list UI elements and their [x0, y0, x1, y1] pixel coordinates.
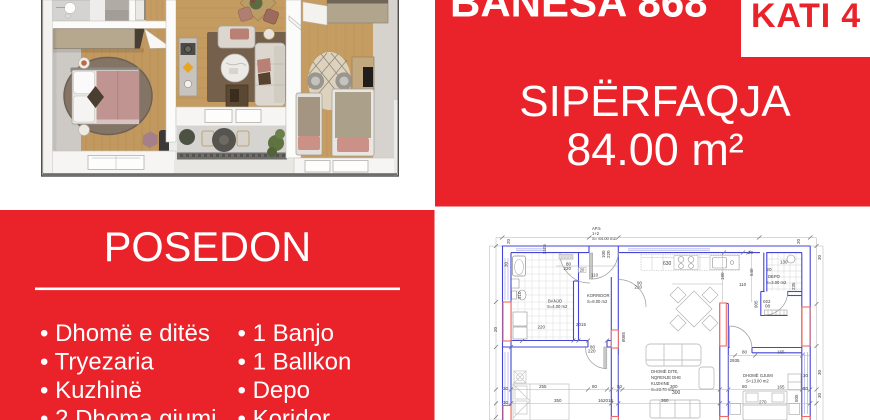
svg-text:• Depo: • Depo: [238, 377, 310, 404]
svg-text:2935: 2935: [730, 358, 741, 363]
svg-text:630: 630: [663, 261, 672, 267]
svg-text:S=3.00 m2: S=3.00 m2: [766, 280, 787, 285]
svg-text:165: 165: [777, 350, 785, 355]
svg-text:30: 30: [504, 261, 509, 267]
svg-text:220: 220: [635, 285, 643, 290]
svg-text:20: 20: [580, 268, 585, 273]
svg-text:S=4.00 m2: S=4.00 m2: [547, 304, 568, 309]
svg-text:• 1 Banjo: • 1 Banjo: [238, 320, 334, 347]
svg-text:84.00 m²: 84.00 m²: [566, 124, 744, 175]
svg-text:DHOMË GJUMI: DHOMË GJUMI: [743, 373, 773, 378]
svg-text:20: 20: [767, 267, 773, 272]
svg-text:20: 20: [748, 250, 754, 255]
svg-text:DEPO: DEPO: [768, 274, 781, 279]
svg-text:• Tryezaria: • Tryezaria: [40, 349, 154, 376]
svg-text:162010: 162010: [598, 398, 614, 403]
svg-text:NQRENJE DHE: NQRENJE DHE: [651, 375, 681, 380]
svg-text:8085: 8085: [621, 331, 626, 342]
svg-text:• Kuzhinë: • Kuzhinë: [40, 377, 142, 404]
svg-text:905: 905: [754, 300, 759, 308]
svg-text:220: 220: [538, 325, 546, 330]
svg-text:220: 220: [564, 266, 572, 271]
svg-text:50: 50: [617, 384, 623, 389]
svg-text:235: 235: [791, 282, 796, 290]
svg-text:80: 80: [742, 350, 748, 355]
svg-text:220: 220: [606, 250, 611, 258]
svg-text:• 1 Ballkon: • 1 Ballkon: [238, 349, 352, 376]
svg-text:30: 30: [817, 369, 822, 375]
svg-text:POSEDON: POSEDON: [104, 223, 312, 270]
svg-text:BANJO: BANJO: [548, 299, 563, 304]
svg-text:540: 540: [749, 268, 754, 276]
svg-text:S105: S105: [542, 244, 547, 254]
svg-text:S=8.00 m2: S=8.00 m2: [587, 299, 608, 304]
svg-text:S=13.00 m2: S=13.00 m2: [746, 379, 769, 384]
svg-text:310: 310: [517, 291, 522, 299]
svg-text:20: 20: [506, 238, 511, 244]
svg-text:350: 350: [554, 398, 562, 403]
svg-text:08: 08: [765, 304, 771, 309]
svg-text:• Koridor: • Koridor: [238, 406, 330, 420]
svg-text:130: 130: [780, 260, 788, 265]
svg-text:110: 110: [739, 282, 747, 287]
svg-text:80: 80: [592, 384, 598, 389]
svg-text:80: 80: [742, 384, 748, 389]
svg-text:• 2 Dhoma gjumi: • 2 Dhoma gjumi: [40, 406, 216, 420]
svg-text:300: 300: [670, 384, 678, 389]
svg-text:270: 270: [759, 400, 767, 405]
svg-text:KATI 4: KATI 4: [751, 0, 861, 35]
svg-text:180: 180: [720, 272, 725, 280]
svg-text:KUZHINE: KUZHINE: [651, 381, 670, 386]
svg-text:KORRIDOR: KORRIDOR: [587, 293, 610, 298]
svg-text:360: 360: [661, 398, 669, 403]
svg-text:SIPËRFAQJA: SIPËRFAQJA: [519, 77, 791, 126]
svg-text:30: 30: [803, 373, 809, 378]
svg-text:505: 505: [794, 394, 799, 402]
svg-text:255: 255: [539, 384, 547, 389]
svg-text:30: 30: [817, 254, 822, 260]
svg-text:30: 30: [503, 400, 509, 405]
svg-text:S= 84.00 m2: S= 84.00 m2: [592, 236, 617, 241]
svg-text:• Dhomë e ditës: • Dhomë e ditës: [40, 320, 210, 347]
svg-text:30: 30: [803, 386, 809, 391]
svg-text:BANESA 868: BANESA 868: [450, 0, 708, 26]
svg-text:30: 30: [503, 386, 509, 391]
svg-text:20: 20: [493, 326, 498, 332]
svg-text:2015: 2015: [576, 322, 587, 327]
svg-text:30: 30: [817, 392, 822, 398]
svg-text:300: 300: [672, 390, 681, 396]
svg-text:165: 165: [777, 385, 785, 390]
svg-text:20: 20: [796, 238, 801, 244]
svg-text:110: 110: [591, 273, 599, 278]
svg-text:220: 220: [588, 349, 596, 354]
svg-text:DHOMË DITE,: DHOMË DITE,: [651, 369, 678, 374]
